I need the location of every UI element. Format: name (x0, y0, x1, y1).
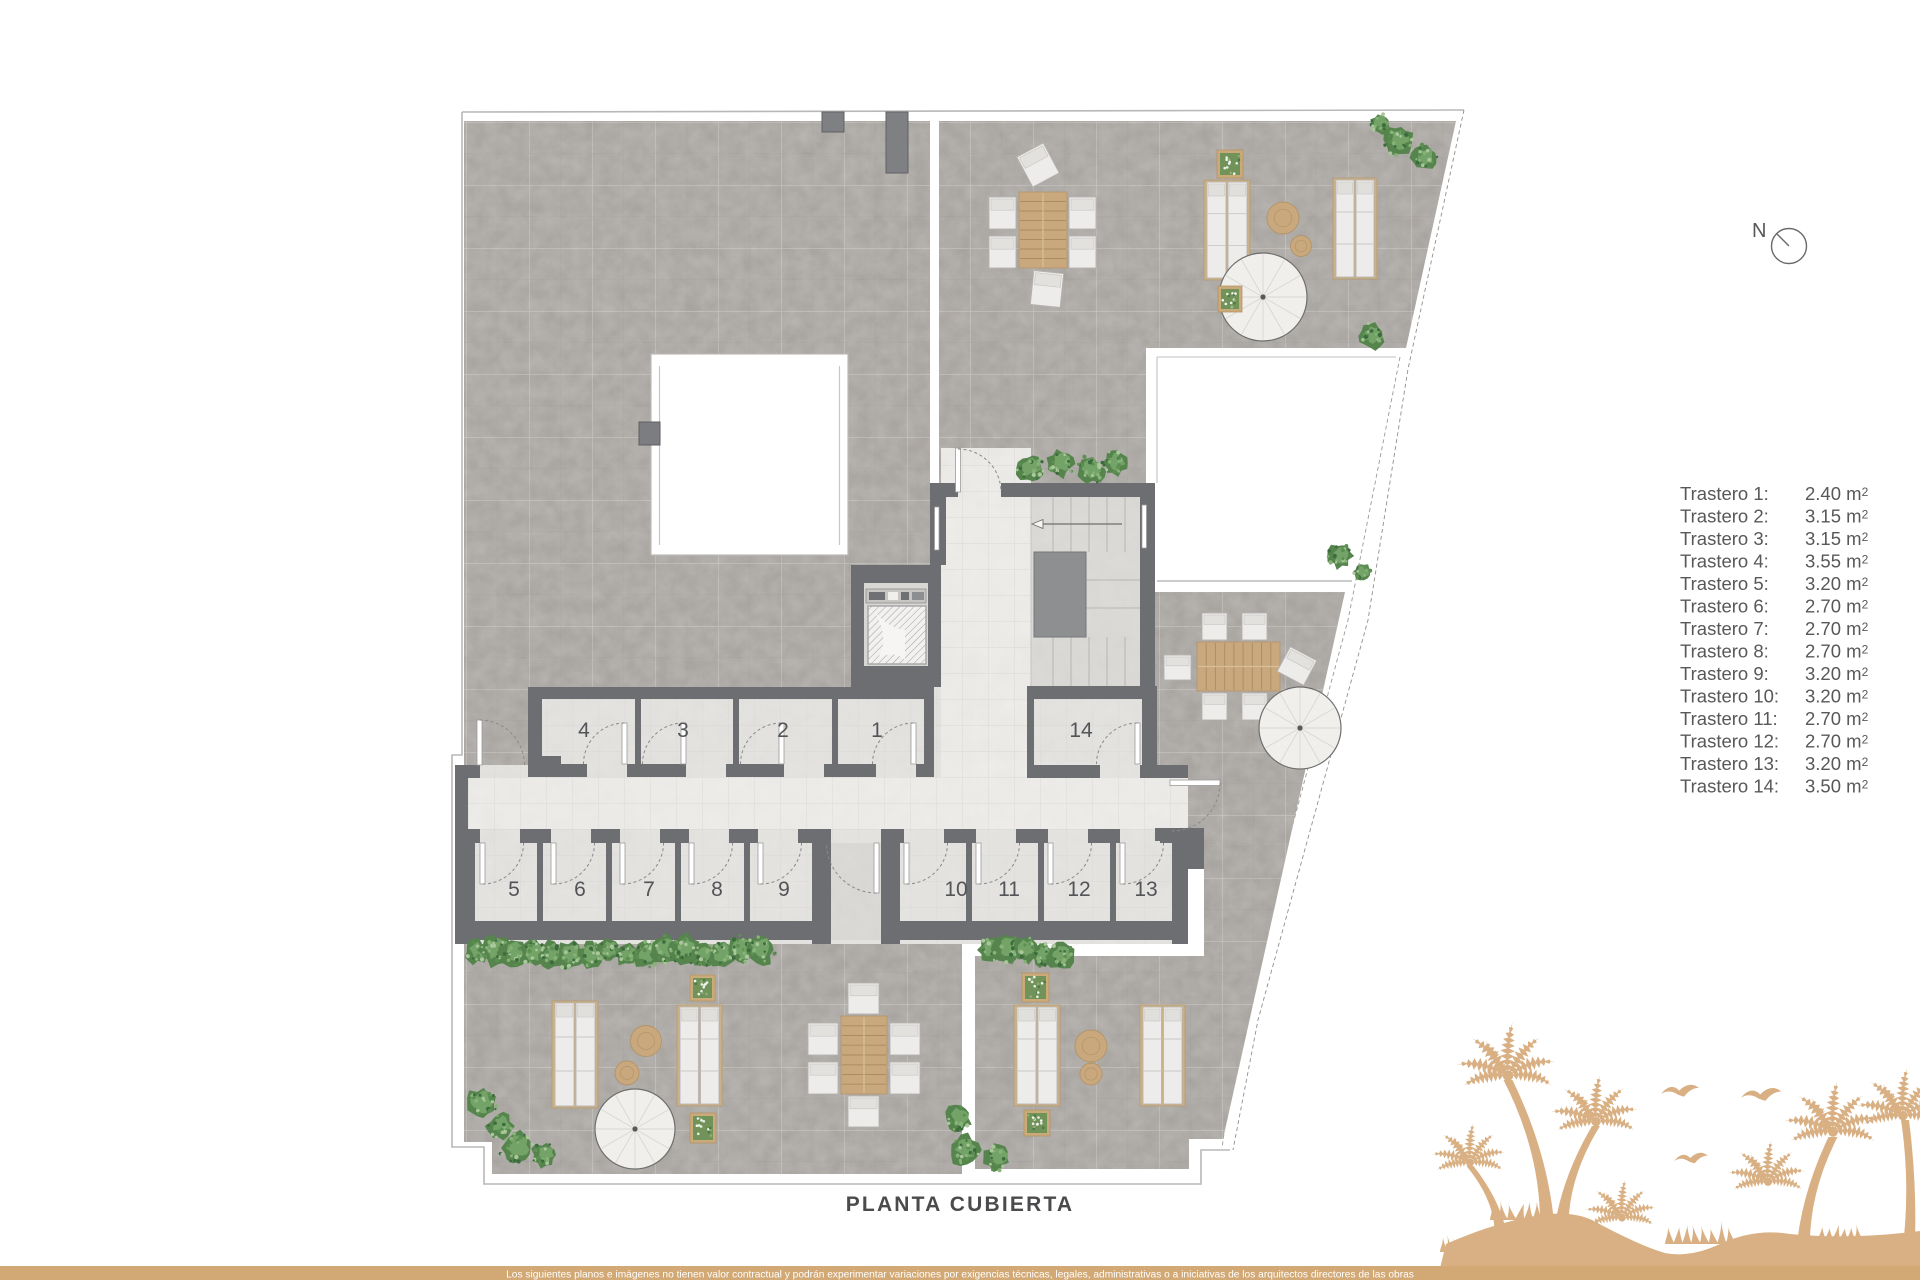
svg-text:Trastero 10:: Trastero 10: (1680, 686, 1779, 707)
svg-text:2.70 m2: 2.70 m2 (1805, 731, 1869, 752)
svg-text:9: 9 (778, 878, 790, 901)
svg-text:3.20 m2: 3.20 m2 (1805, 663, 1869, 684)
svg-text:Trastero 4:: Trastero 4: (1680, 551, 1769, 572)
svg-text:5: 5 (508, 878, 520, 901)
svg-text:14: 14 (1069, 719, 1093, 742)
svg-text:12: 12 (1067, 878, 1090, 901)
svg-text:Trastero 12:: Trastero 12: (1680, 731, 1779, 752)
svg-text:3.20 m2: 3.20 m2 (1805, 573, 1869, 594)
svg-text:8: 8 (711, 878, 723, 901)
svg-text:Trastero 7:: Trastero 7: (1680, 618, 1769, 639)
svg-text:2.40 m2: 2.40 m2 (1805, 483, 1869, 504)
svg-text:3.50 m2: 3.50 m2 (1805, 776, 1869, 797)
svg-text:Trastero 5:: Trastero 5: (1680, 573, 1769, 594)
svg-text:3: 3 (677, 719, 689, 742)
svg-text:7: 7 (643, 878, 655, 901)
svg-text:Trastero 9:: Trastero 9: (1680, 663, 1769, 684)
svg-text:Trastero 14:: Trastero 14: (1680, 776, 1779, 797)
svg-text:Trastero 6:: Trastero 6: (1680, 596, 1769, 617)
svg-text:Trastero 2:: Trastero 2: (1680, 506, 1769, 527)
svg-text:2.70 m2: 2.70 m2 (1805, 708, 1869, 729)
svg-text:Trastero 13:: Trastero 13: (1680, 753, 1779, 774)
svg-text:3.20 m2: 3.20 m2 (1805, 753, 1869, 774)
svg-text:13: 13 (1134, 878, 1157, 901)
svg-text:Los siguientes planos e imágen: Los siguientes planos e imágenes no tien… (506, 1270, 1414, 1280)
svg-text:3.55 m2: 3.55 m2 (1805, 551, 1869, 572)
svg-text:Trastero 1:: Trastero 1: (1680, 483, 1769, 504)
svg-text:2.70 m2: 2.70 m2 (1805, 618, 1869, 639)
svg-text:1: 1 (871, 719, 883, 742)
svg-text:2.70 m2: 2.70 m2 (1805, 596, 1869, 617)
svg-text:3.15 m2: 3.15 m2 (1805, 528, 1869, 549)
svg-text:Trastero 3:: Trastero 3: (1680, 528, 1769, 549)
svg-text:4: 4 (578, 719, 590, 742)
svg-text:6: 6 (574, 878, 586, 901)
svg-text:2: 2 (777, 719, 789, 742)
svg-text:PLANTA CUBIERTA: PLANTA CUBIERTA (846, 1193, 1075, 1216)
svg-text:11: 11 (998, 878, 1020, 901)
svg-text:Trastero 8:: Trastero 8: (1680, 641, 1769, 662)
svg-text:3.15 m2: 3.15 m2 (1805, 506, 1869, 527)
svg-text:3.20 m2: 3.20 m2 (1805, 686, 1869, 707)
svg-text:Trastero 11:: Trastero 11: (1680, 708, 1778, 729)
svg-text:10: 10 (944, 878, 967, 901)
svg-text:2.70 m2: 2.70 m2 (1805, 641, 1869, 662)
svg-text:N: N (1752, 220, 1766, 242)
